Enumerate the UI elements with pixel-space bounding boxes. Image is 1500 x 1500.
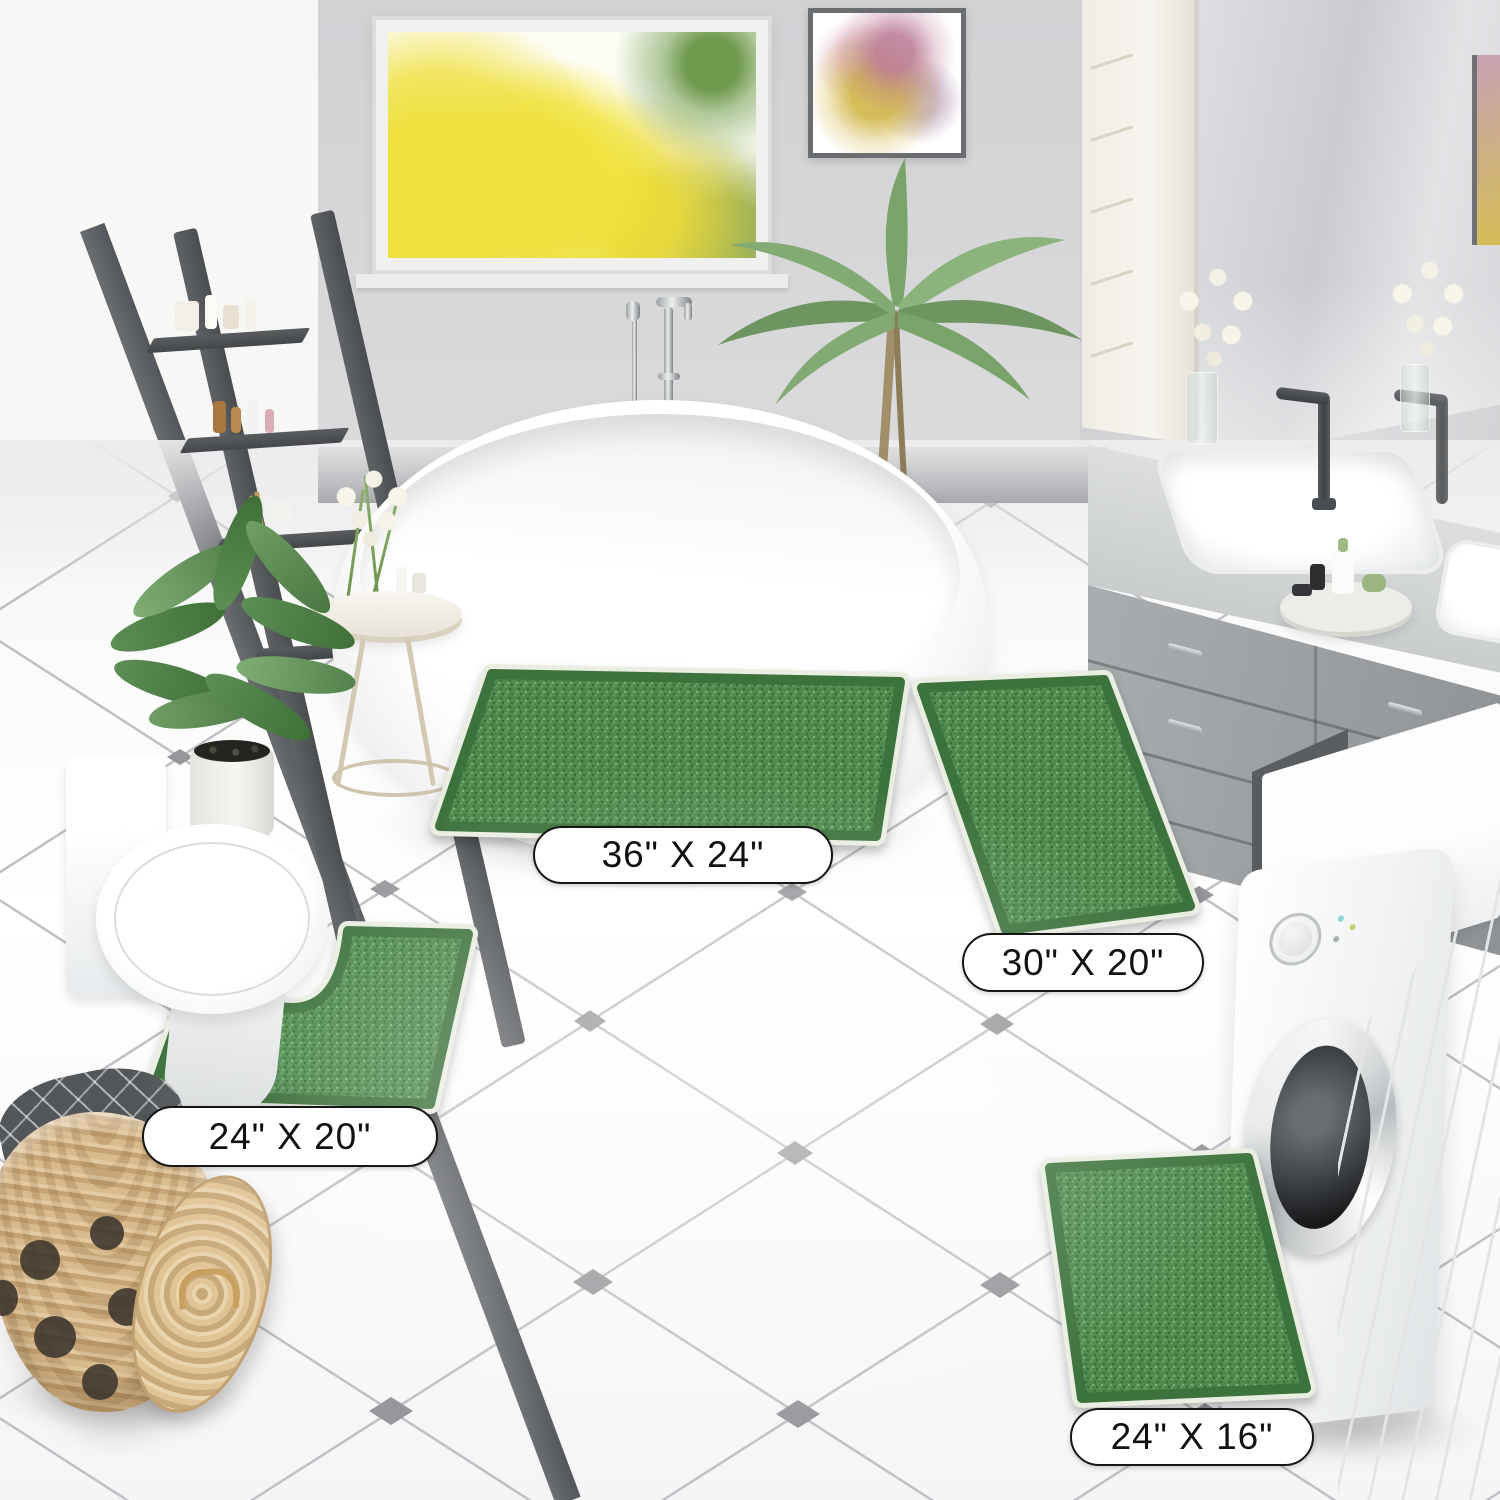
size-label-24x16: 24" X 16"	[1070, 1408, 1314, 1466]
bath-rug-30x20	[922, 680, 1190, 930]
basket-dot	[82, 1364, 118, 1400]
size-label-text: 24" X 20"	[209, 1116, 372, 1158]
size-label-36x24: 36" X 24"	[533, 826, 833, 884]
bath-rug-24x16	[1050, 1158, 1306, 1398]
size-label-text: 30" X 20"	[1002, 942, 1165, 984]
basket-dot	[20, 1240, 60, 1280]
basket-dot	[90, 1216, 124, 1250]
basket-dot	[34, 1316, 76, 1358]
toilet-seat-seam	[114, 842, 310, 996]
bathroom-product-scene: 36" X 24" 30" X 20" 24" X 20" 24" X 16"	[0, 0, 1500, 1500]
toilet-seat	[96, 824, 328, 1014]
basket-dot	[0, 1280, 18, 1316]
bath-rug-36x24	[440, 674, 900, 836]
size-label-30x20: 30" X 20"	[962, 933, 1204, 992]
size-label-24x20: 24" X 20"	[142, 1106, 438, 1167]
basket-lid-handle	[178, 1268, 239, 1310]
pot-pebbles	[194, 740, 270, 762]
size-label-text: 24" X 16"	[1111, 1416, 1274, 1458]
size-label-text: 36" X 24"	[602, 834, 765, 876]
